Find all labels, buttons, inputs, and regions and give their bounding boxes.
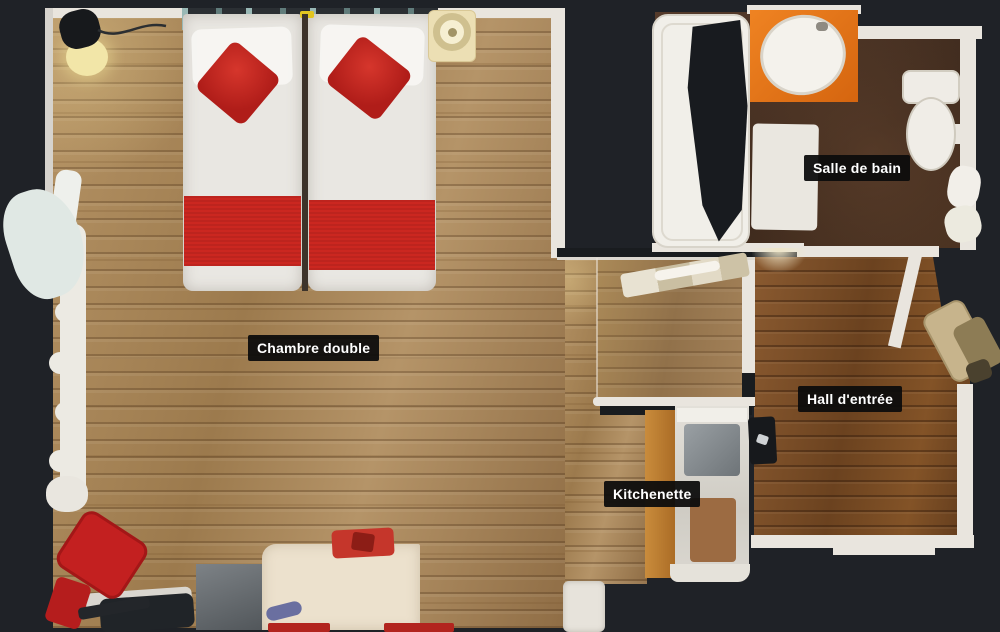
- bed-gap-shadow: [302, 14, 308, 291]
- desk-red-object-detail: [351, 532, 375, 553]
- hall-wall-right: [957, 384, 973, 548]
- hall-door-glow: [752, 248, 806, 272]
- white-cabinet: [563, 581, 605, 632]
- kitchen-counter-top: [677, 408, 747, 422]
- nightstand-lamp-center: [448, 28, 457, 37]
- room-label-bedroom[interactable]: Chambre double: [248, 335, 379, 361]
- sink-faucet: [816, 22, 828, 31]
- red-chair-frame: [78, 596, 151, 620]
- red-chair-leg: [44, 576, 92, 631]
- bottom-red-item-2: [384, 623, 454, 632]
- bathtub: [652, 14, 750, 248]
- toilet-bowl: [906, 97, 956, 171]
- room-label-hall[interactable]: Hall d'entrée: [798, 386, 902, 412]
- alcove-glass-line: [596, 258, 598, 397]
- floorplan-stage: Chambre double Salle de bain Hall d'entr…: [0, 0, 1000, 632]
- hall-chair: [933, 293, 1000, 387]
- curtain-wave-3: [49, 352, 71, 374]
- bed-right-red-runner: [309, 200, 435, 270]
- bag-highlight: [756, 433, 769, 445]
- bedroom-wall-right: [551, 8, 565, 258]
- curtain-foot: [46, 476, 88, 512]
- room-label-bathroom[interactable]: Salle de bain: [804, 155, 910, 181]
- hall-wall-bottom-step: [833, 543, 935, 555]
- kitchen-end-cap: [670, 564, 750, 582]
- kitchen-appliance: [684, 424, 740, 476]
- bottom-red-item-1: [268, 623, 330, 632]
- curtain-wave-4: [55, 402, 75, 422]
- bed-left-red-runner: [184, 196, 301, 266]
- lamp-cord: [96, 12, 168, 46]
- bath-corner-mask: [858, 8, 966, 28]
- curtain-wave-5: [49, 450, 71, 472]
- bedroom-wall-left: [45, 8, 53, 198]
- kitchen-cutting-board: [690, 498, 736, 562]
- hall-dark-bag: [748, 416, 777, 464]
- red-chair: [50, 516, 156, 632]
- room-label-kitchenette[interactable]: Kitchenette: [604, 481, 700, 507]
- grey-table: [196, 564, 266, 630]
- alcove-wall-bottom: [593, 397, 755, 406]
- curtain-wave-2: [55, 302, 75, 322]
